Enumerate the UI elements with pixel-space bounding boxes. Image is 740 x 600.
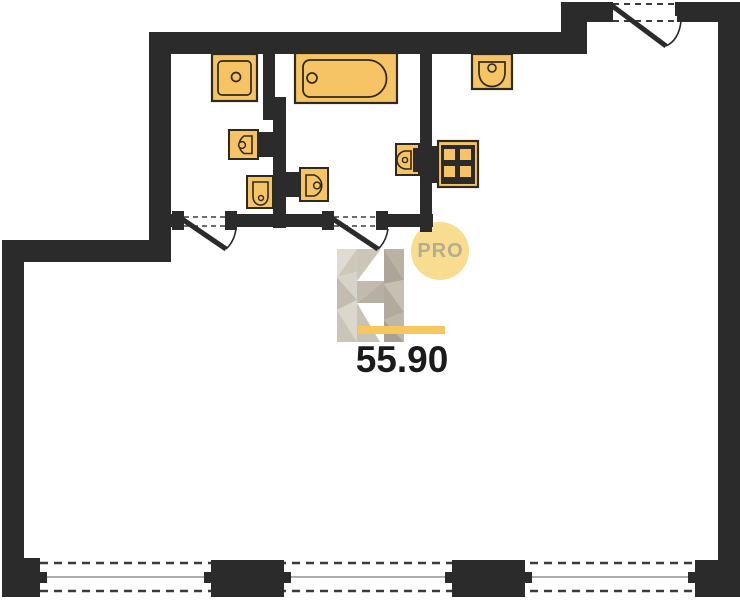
floor-plan: PRO 55.90 <box>0 0 740 600</box>
watermark-accent-bar <box>358 326 445 334</box>
door-post <box>376 211 388 230</box>
wall-kitchen-partition <box>420 53 432 232</box>
door-post <box>675 2 683 16</box>
window-frame-nub <box>445 572 452 583</box>
door-swing-arc <box>666 21 681 46</box>
bottom-windows <box>40 563 695 591</box>
bathtub-icon <box>295 53 397 103</box>
pro-badge-label: PRO <box>410 239 471 264</box>
wall-pier-1 <box>211 560 284 597</box>
door-swing-arc <box>378 229 388 249</box>
door-leaf <box>182 219 226 249</box>
door-swing-arc <box>226 229 236 249</box>
door-leaf <box>333 219 378 249</box>
window-frame-nub <box>40 572 47 583</box>
wall-corner-bottom-right <box>695 560 740 597</box>
wall-top <box>149 32 587 54</box>
stove-icon <box>432 141 478 187</box>
wall-bath-divider <box>273 97 286 228</box>
wall-left <box>2 240 24 597</box>
wall-right <box>718 2 740 597</box>
window-frame-nub <box>688 572 695 583</box>
floor-plan-drawing <box>0 0 740 600</box>
fixtures <box>212 52 512 208</box>
wall-step-left <box>2 240 171 262</box>
wall-pier-2 <box>452 560 525 597</box>
toilet-icon <box>229 130 274 159</box>
window-frame-nub <box>204 572 211 583</box>
wall-corner-bottom-left <box>2 558 40 597</box>
bidet-icon <box>247 176 273 208</box>
window-frame-nub <box>525 572 532 583</box>
area-label: 55.90 <box>348 341 456 378</box>
toilet-icon <box>286 168 328 201</box>
washbasin-icon <box>212 54 257 101</box>
balcony-door-leaf <box>611 5 666 46</box>
wall-upper-left <box>149 32 171 262</box>
wall-washbasin-icon <box>396 144 422 175</box>
wall-hall-seg-3 <box>388 214 433 227</box>
kitchen-sink-icon <box>472 52 512 89</box>
door-post <box>225 211 237 230</box>
window-frame-nub <box>284 572 291 583</box>
